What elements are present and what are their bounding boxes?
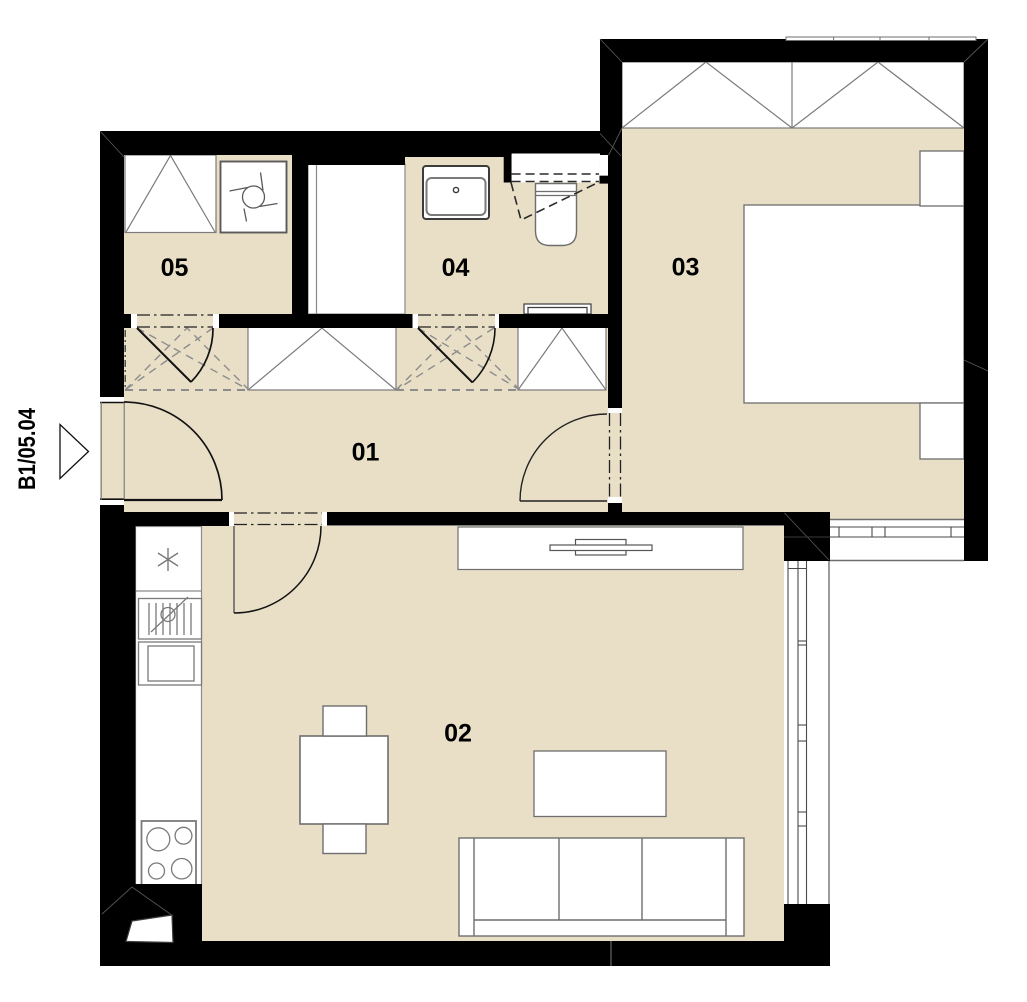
svg-text:05: 05 (161, 254, 189, 282)
svg-text:02: 02 (444, 720, 472, 748)
svg-text:03: 03 (672, 254, 700, 282)
svg-text:B1/05.04: B1/05.04 (14, 407, 41, 490)
svg-text:04: 04 (442, 254, 470, 282)
svg-text:01: 01 (352, 439, 380, 467)
